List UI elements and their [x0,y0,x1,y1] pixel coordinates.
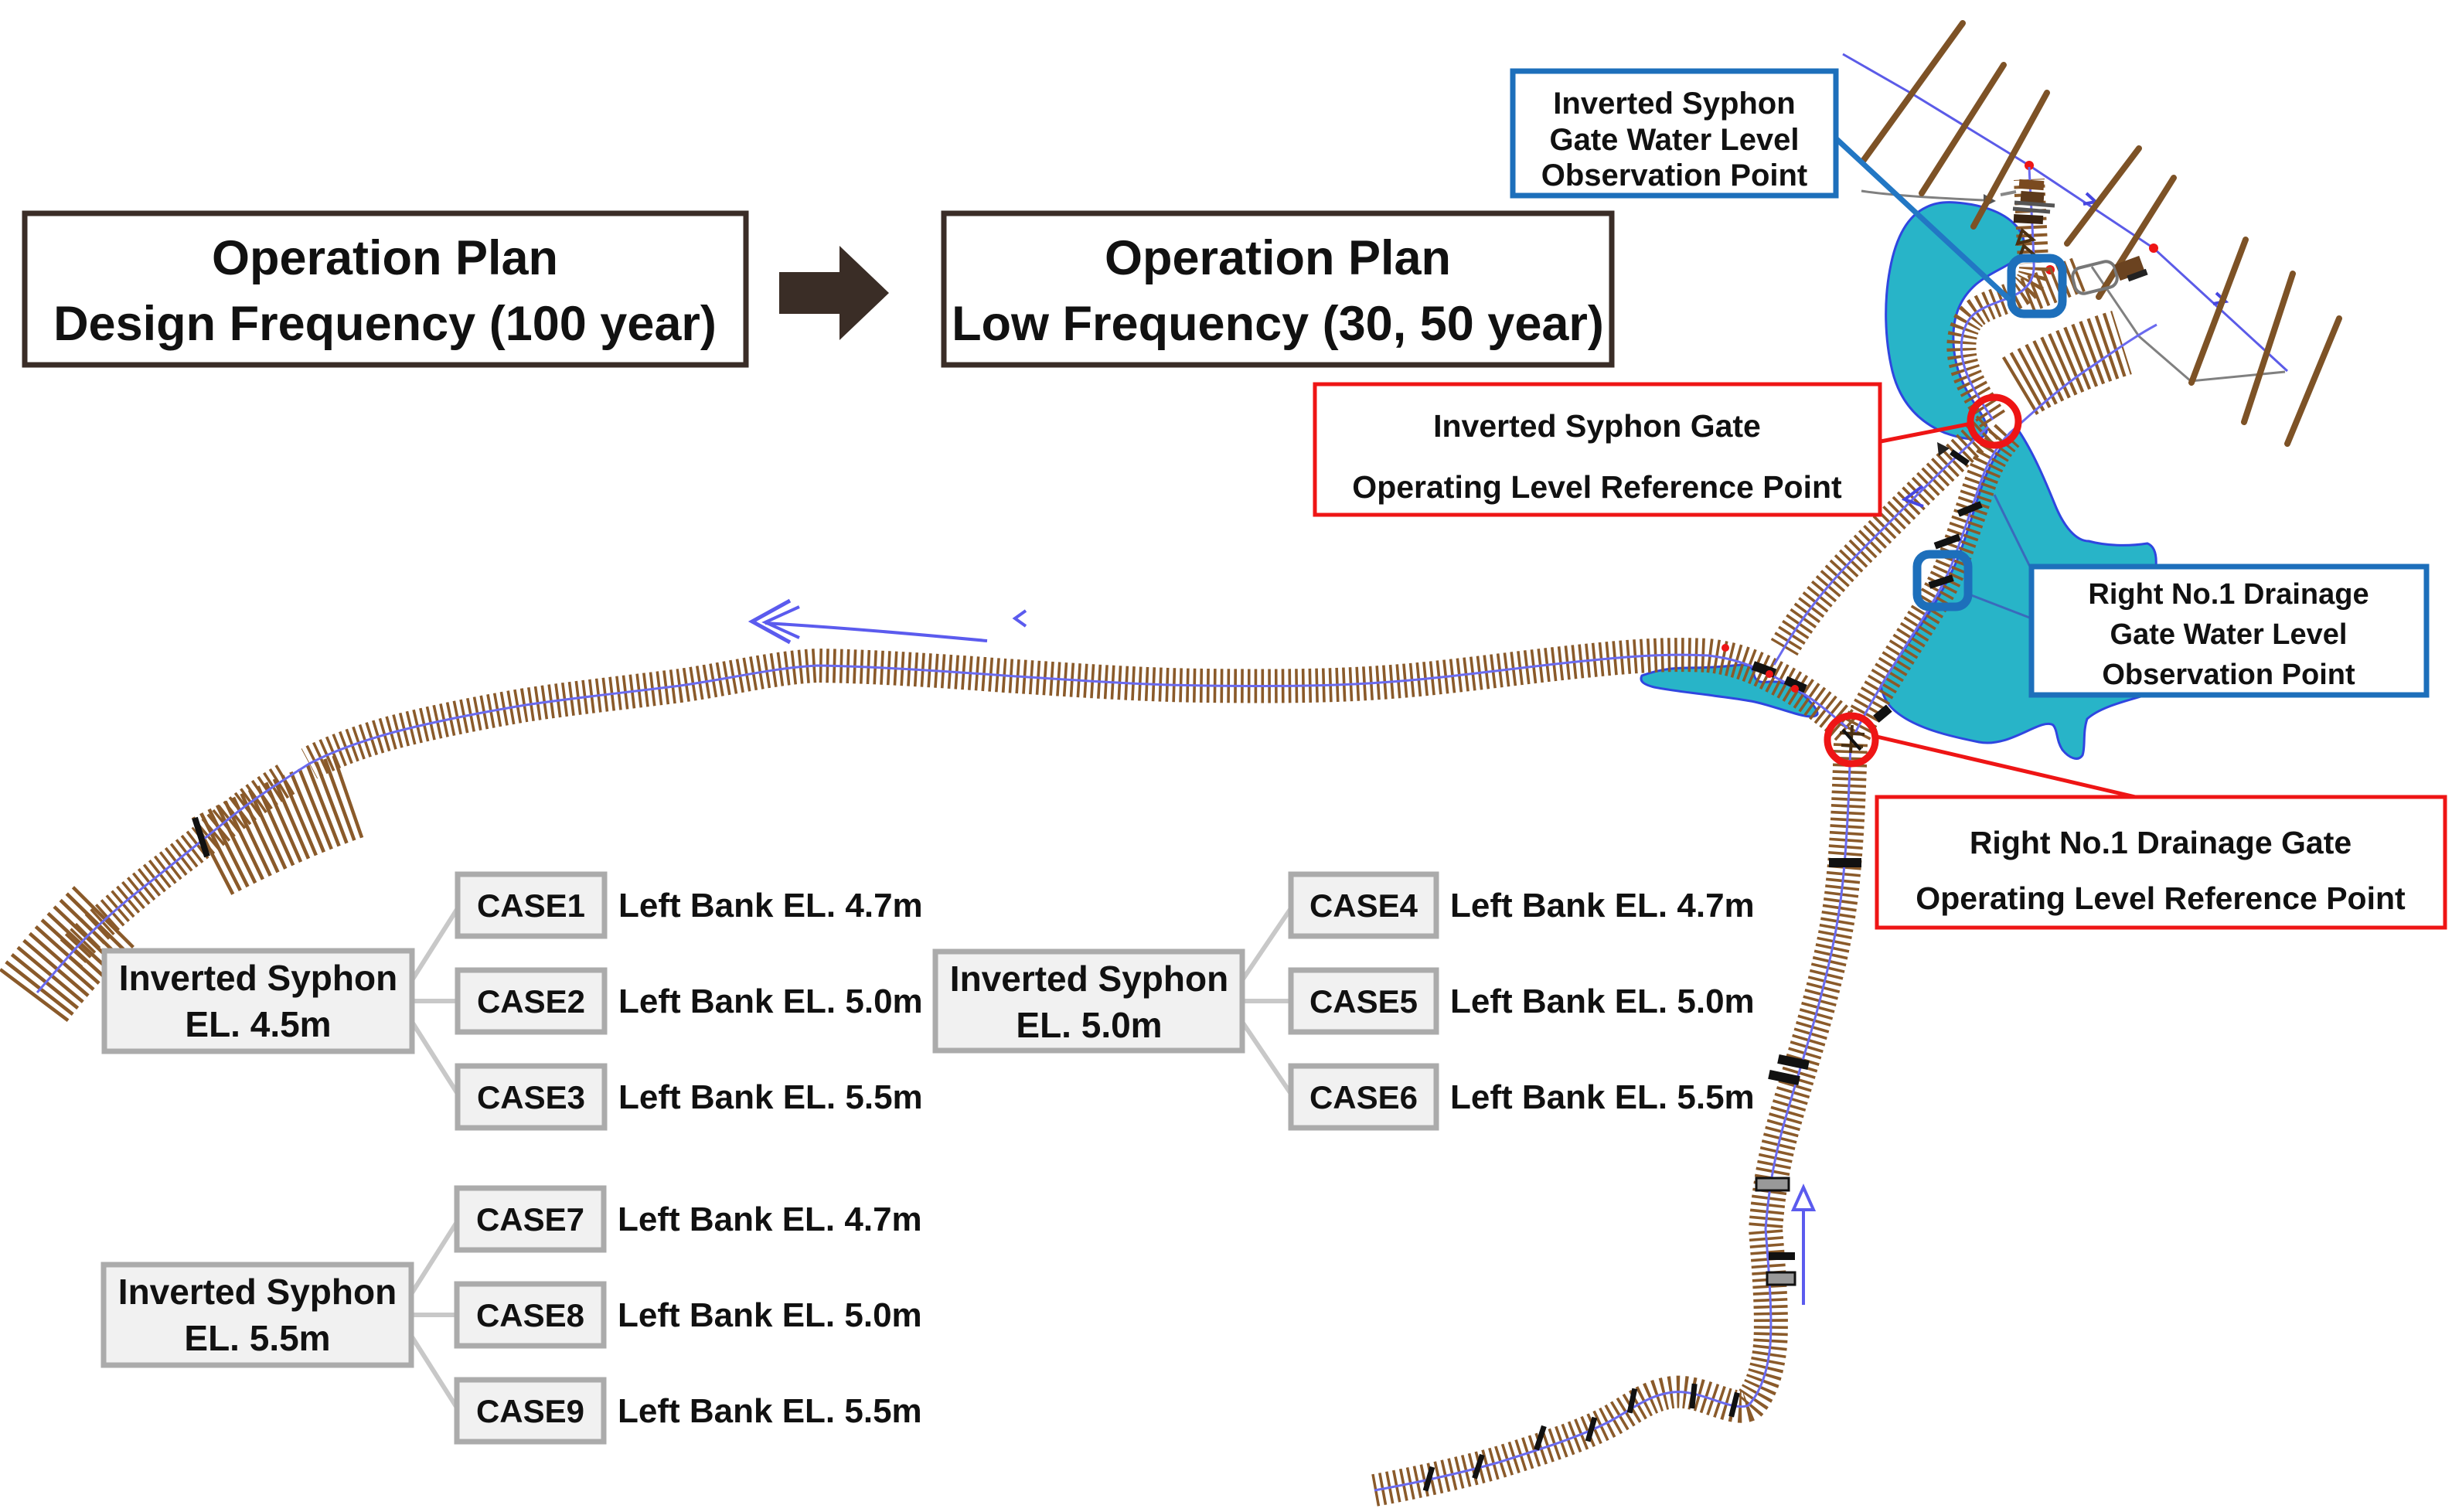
svg-text:Inverted Syphon: Inverted Syphon [118,1272,397,1312]
svg-text:Left Bank EL. 5.5m: Left Bank EL. 5.5m [1450,1078,1755,1116]
svg-text:EL. 5.0m: EL. 5.0m [1016,1005,1162,1045]
svg-text:EL. 5.5m: EL. 5.5m [184,1318,330,1358]
svg-text:Operation Plan: Operation Plan [1105,231,1451,285]
svg-text:Left Bank EL. 5.0m: Left Bank EL. 5.0m [618,982,923,1020]
svg-text:Right No.1 Drainage Gate: Right No.1 Drainage Gate [1970,825,2352,860]
svg-text:Left Bank EL. 5.0m: Left Bank EL. 5.0m [1450,982,1755,1020]
svg-text:CASE7: CASE7 [476,1201,584,1238]
svg-text:Inverted Syphon Gate: Inverted Syphon Gate [1433,408,1761,444]
svg-text:CASE2: CASE2 [477,983,585,1020]
svg-text:Inverted Syphon: Inverted Syphon [1553,87,1795,121]
svg-text:Low Frequency (30, 50 year): Low Frequency (30, 50 year) [952,297,1604,351]
svg-text:Inverted Syphon: Inverted Syphon [950,959,1228,999]
svg-text:Left Bank EL. 4.7m: Left Bank EL. 4.7m [1450,887,1755,925]
svg-text:CASE4: CASE4 [1309,887,1418,924]
svg-text:Left Bank EL. 5.0m: Left Bank EL. 5.0m [618,1296,922,1334]
svg-text:Operation Plan: Operation Plan [212,231,558,285]
svg-text:Left Bank EL. 5.5m: Left Bank EL. 5.5m [618,1392,922,1430]
svg-text:CASE3: CASE3 [477,1079,585,1115]
svg-text:CASE1: CASE1 [477,887,585,924]
svg-text:Operating Level Reference Poin: Operating Level Reference Point [1916,880,2406,916]
svg-text:Left Bank EL. 4.7m: Left Bank EL. 4.7m [618,887,923,925]
svg-text:Design Frequency (100 year): Design Frequency (100 year) [53,297,717,351]
svg-text:Operating Level Reference Poin: Operating Level Reference Point [1352,469,1842,505]
svg-text:CASE9: CASE9 [476,1393,584,1429]
svg-text:Left Bank EL. 5.5m: Left Bank EL. 5.5m [618,1078,923,1116]
svg-text:Observation Point: Observation Point [1541,158,1808,192]
svg-text:Observation Point: Observation Point [2102,659,2355,691]
svg-text:CASE5: CASE5 [1309,983,1418,1020]
svg-text:CASE6: CASE6 [1309,1079,1418,1115]
svg-text:Gate Water Level: Gate Water Level [2110,618,2348,651]
svg-text:Gate Water Level: Gate Water Level [1549,123,1799,157]
svg-text:CASE8: CASE8 [476,1297,584,1333]
svg-text:Inverted Syphon: Inverted Syphon [119,958,397,998]
svg-text:EL. 4.5m: EL. 4.5m [185,1004,331,1044]
svg-text:Left Bank EL. 4.7m: Left Bank EL. 4.7m [618,1200,922,1238]
svg-text:Right No.1 Drainage: Right No.1 Drainage [2088,578,2369,611]
